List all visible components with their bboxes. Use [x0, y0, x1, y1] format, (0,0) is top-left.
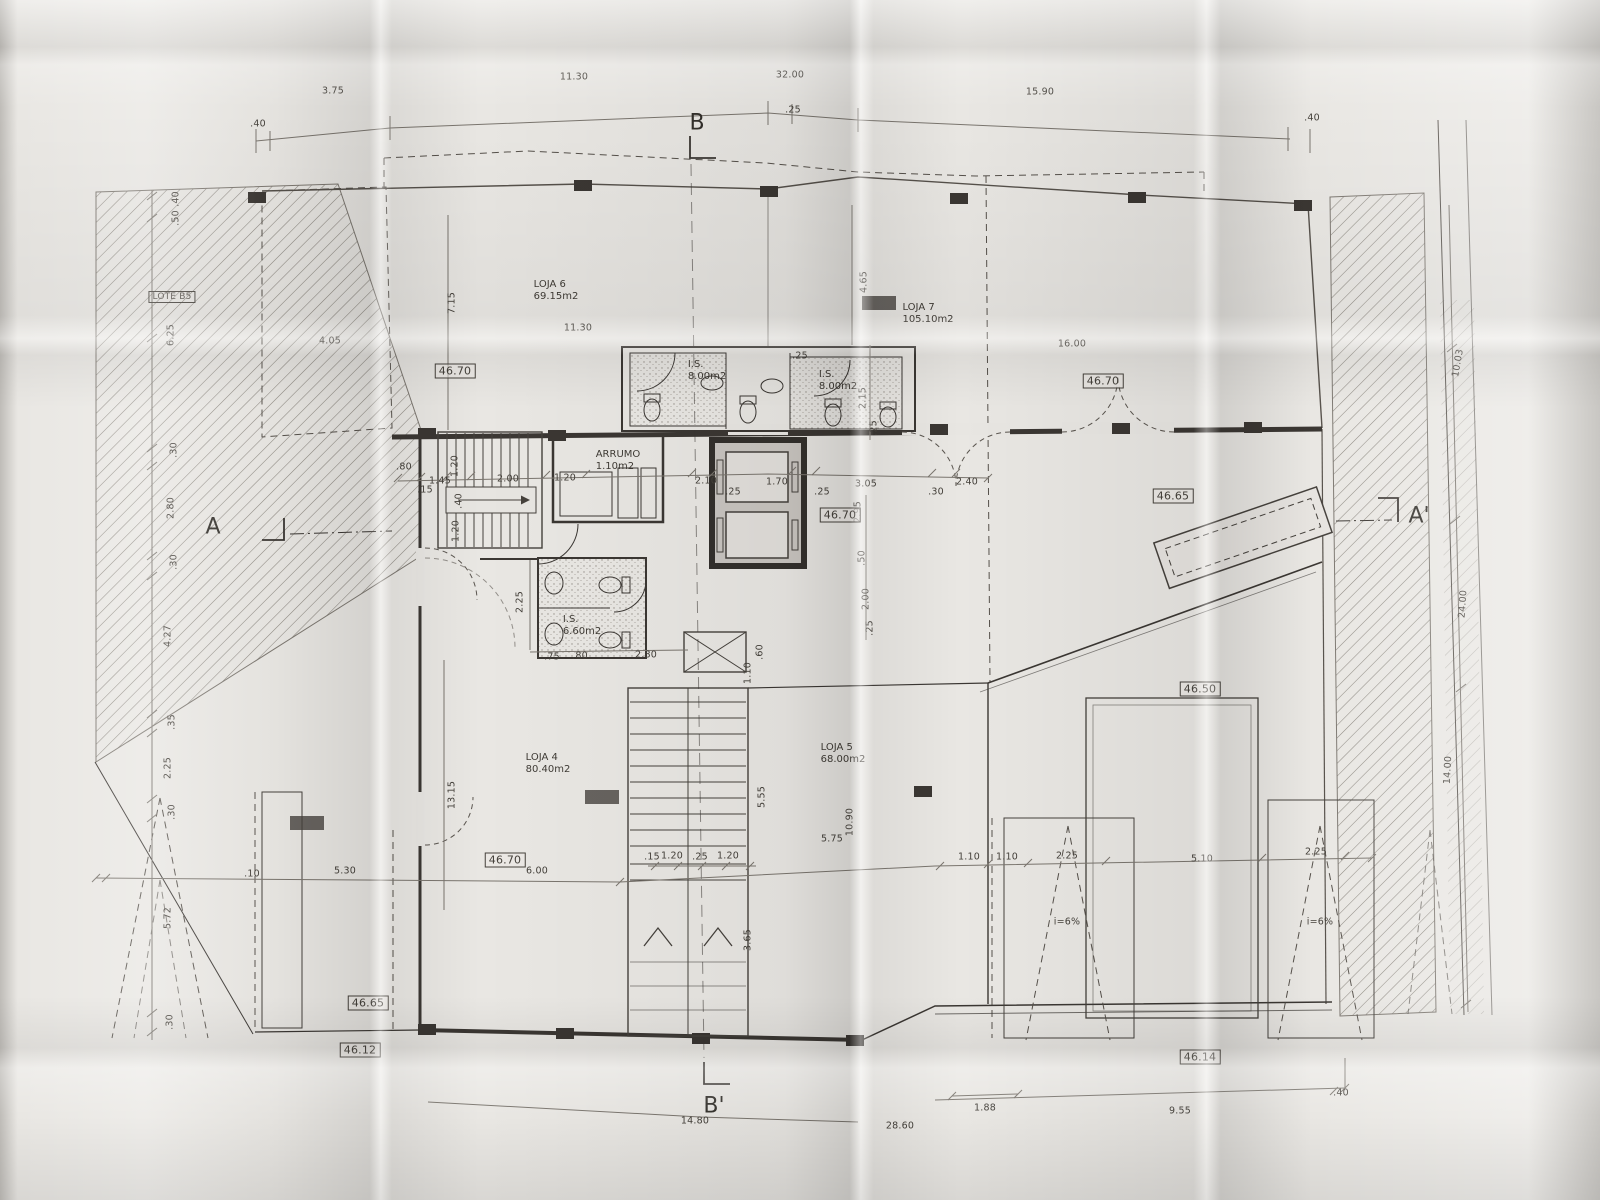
- dimension-label: 1.10: [958, 852, 980, 863]
- dimension-label: 2.25: [163, 757, 174, 779]
- dimension-label: 3.05: [855, 479, 877, 490]
- dimension-label: 2.80: [635, 650, 657, 661]
- dimension-label: .40: [1304, 113, 1320, 124]
- dimension-label: .25: [869, 420, 880, 436]
- dimension-label: .80: [572, 651, 588, 662]
- slope-label: i=6%: [1054, 917, 1080, 928]
- dimension-label: .75: [544, 652, 560, 663]
- dimension-label: .25: [785, 105, 801, 116]
- dimension-label: .50: [171, 210, 182, 226]
- dimension-label: 4.65: [859, 271, 870, 293]
- dimension-label: 2.25: [1305, 847, 1327, 858]
- dimension-label: 1.20: [717, 851, 739, 862]
- room-label: ARRUMO1.10m2: [596, 449, 641, 473]
- room-label: LOJA 480.40m2: [526, 752, 571, 776]
- elevation-label: 46.70: [1083, 374, 1124, 389]
- dimension-label: 2.25: [515, 591, 526, 613]
- lot-label: LOTE B5: [148, 291, 195, 303]
- dimension-label: .15: [417, 485, 433, 496]
- dimension-label: 2.40: [956, 477, 978, 488]
- dimension-label: 1.10: [996, 852, 1018, 863]
- dimension-label: 5.30: [334, 866, 356, 877]
- room-label: I.S.8.00m2: [819, 369, 857, 393]
- dimension-label: .30: [169, 554, 180, 570]
- room-label: LOJA 669.15m2: [534, 279, 579, 303]
- dimension-label: 5.72: [163, 907, 174, 929]
- elevation-label: 46.70: [435, 364, 476, 379]
- dimension-label: 2.00: [497, 474, 519, 485]
- dimension-label: 16.00: [1058, 339, 1086, 350]
- room-label: LOJA 568.00m2: [821, 742, 866, 766]
- dimension-label: .25: [792, 351, 808, 362]
- dimension-label: 2.10: [695, 476, 717, 487]
- dimension-label: 3.75: [322, 86, 344, 97]
- dimension-label: .25: [865, 620, 876, 636]
- elevation-label: 46.65: [348, 996, 389, 1011]
- dimension-label: 5.75: [821, 834, 843, 845]
- room-label: LOJA 7105.10m2: [902, 302, 953, 326]
- dimension-label: 15.90: [1026, 87, 1054, 98]
- dimension-label: 10.03: [1450, 348, 1466, 378]
- dimension-label: 28.60: [886, 1121, 914, 1132]
- dimension-label: .35: [167, 714, 178, 730]
- dimension-label: 6.00: [526, 866, 548, 877]
- dimension-label: 1.20: [450, 455, 461, 477]
- photographed-floor-plan: .403.7511.3032.00.2515.90.40.40.506.25.3…: [0, 0, 1600, 1200]
- dimension-label: 32.00: [776, 70, 804, 81]
- dimension-label: .25: [692, 852, 708, 863]
- dimension-label: 14.00: [1442, 756, 1454, 785]
- dimension-label: 24.00: [1457, 590, 1470, 619]
- dimension-label: .30: [928, 487, 944, 498]
- dimension-label: 2.00: [861, 588, 872, 610]
- elevation-label: 46.50: [1180, 682, 1221, 697]
- elevation-label: 46.12: [340, 1043, 381, 1058]
- dimension-label: .40: [454, 493, 465, 509]
- section-marker-A-prime: A': [1408, 504, 1429, 529]
- dimension-label: 11.30: [560, 72, 588, 83]
- dimension-label: 6.25: [166, 324, 177, 346]
- dimension-label: .30: [165, 1014, 176, 1030]
- section-marker-B-prime: B': [703, 1094, 724, 1119]
- slope-label: i=6%: [1307, 917, 1333, 928]
- dimension-label: .50: [857, 550, 868, 566]
- dimension-label: .40: [250, 119, 266, 130]
- dimension-label: 4.05: [319, 336, 341, 347]
- dimension-label: 1.88: [974, 1103, 996, 1114]
- dimension-label: 9.55: [1169, 1106, 1191, 1117]
- plan-labels: .403.7511.3032.00.2515.90.40.40.506.25.3…: [0, 0, 1600, 1200]
- elevation-label: 46.65: [1153, 489, 1194, 504]
- dimension-label: .15: [644, 852, 660, 863]
- dimension-label: .60: [755, 644, 766, 660]
- elevation-label: 46.70: [820, 508, 861, 523]
- dimension-label: 1.20: [554, 473, 576, 484]
- dimension-label: 7.15: [447, 292, 458, 314]
- dimension-label: .25: [725, 487, 741, 498]
- dimension-label: 1.10: [743, 662, 754, 684]
- elevation-label: 46.14: [1180, 1050, 1221, 1065]
- dimension-label: 2.80: [166, 497, 177, 519]
- section-marker-B: B: [689, 111, 704, 136]
- dimension-label: 4.27: [163, 625, 174, 647]
- room-label: I.S.8.00m2: [688, 359, 726, 383]
- dimension-label: 2.25: [1056, 851, 1078, 862]
- section-marker-A: A: [205, 515, 220, 540]
- dimension-label: .40: [1333, 1088, 1349, 1099]
- dimension-label: 11.30: [564, 323, 592, 334]
- dimension-label: .25: [814, 487, 830, 498]
- dimension-label: .10: [244, 869, 260, 880]
- dimension-label: .80: [396, 462, 412, 473]
- dimension-label: 2.15: [858, 387, 869, 409]
- dimension-label: 1.20: [451, 520, 462, 542]
- dimension-label: 13.15: [447, 781, 458, 809]
- dimension-label: .30: [169, 442, 180, 458]
- elevation-label: 46.70: [485, 853, 526, 868]
- dimension-label: .40: [171, 191, 182, 207]
- dimension-label: 1.20: [661, 851, 683, 862]
- dimension-label: .30: [167, 804, 178, 820]
- dimension-label: 10.90: [845, 808, 856, 836]
- room-label: I.S.6.60m2: [563, 614, 601, 638]
- dimension-label: 5.10: [1191, 854, 1213, 865]
- dimension-label: 1.70: [766, 477, 788, 488]
- dimension-label: 3.65: [743, 929, 754, 951]
- dimension-label: 5.55: [757, 786, 768, 808]
